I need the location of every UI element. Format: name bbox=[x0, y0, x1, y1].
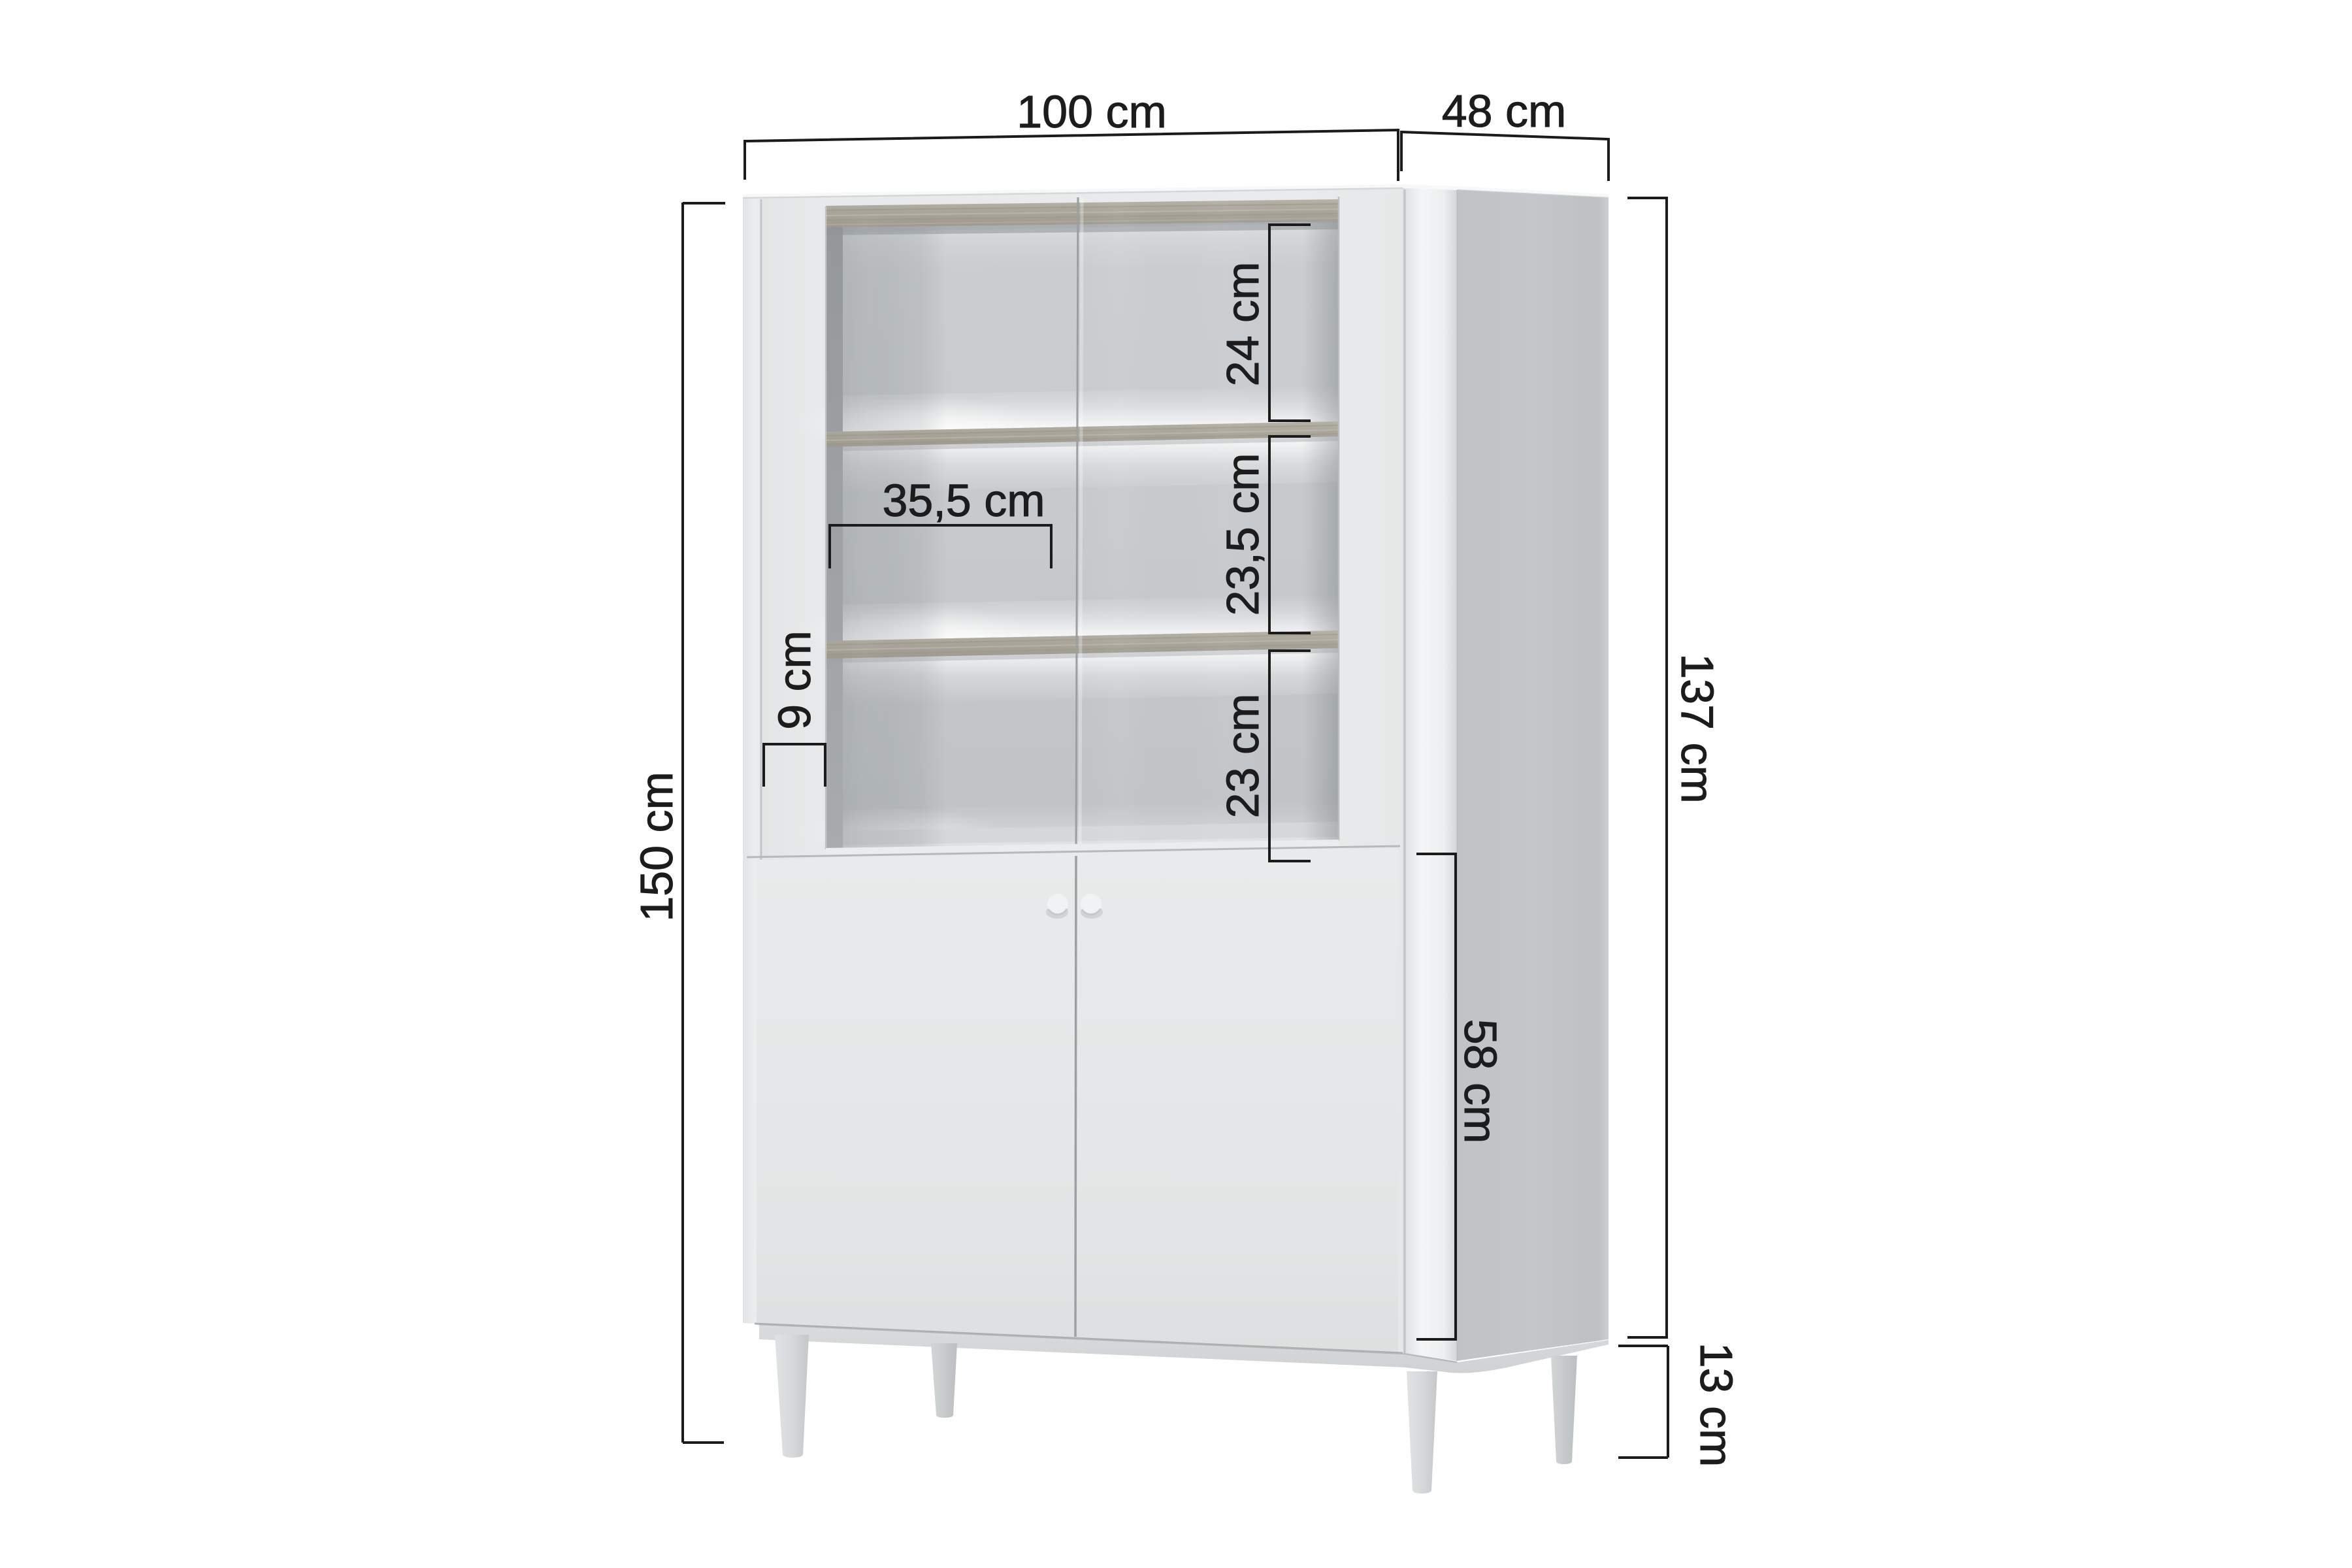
svg-text:137 cm: 137 cm bbox=[1672, 653, 1723, 804]
svg-text:150 cm: 150 cm bbox=[631, 772, 682, 922]
svg-text:100 cm: 100 cm bbox=[1017, 86, 1167, 137]
svg-text:24 cm: 24 cm bbox=[1217, 262, 1268, 387]
svg-text:23 cm: 23 cm bbox=[1217, 694, 1268, 819]
svg-text:48 cm: 48 cm bbox=[1442, 86, 1567, 137]
svg-text:9 cm: 9 cm bbox=[769, 630, 820, 730]
svg-text:58 cm: 58 cm bbox=[1455, 1019, 1506, 1144]
svg-text:23,5 cm: 23,5 cm bbox=[1217, 453, 1268, 616]
svg-text:13 cm: 13 cm bbox=[1691, 1343, 1742, 1467]
svg-text:35,5 cm: 35,5 cm bbox=[883, 475, 1045, 526]
